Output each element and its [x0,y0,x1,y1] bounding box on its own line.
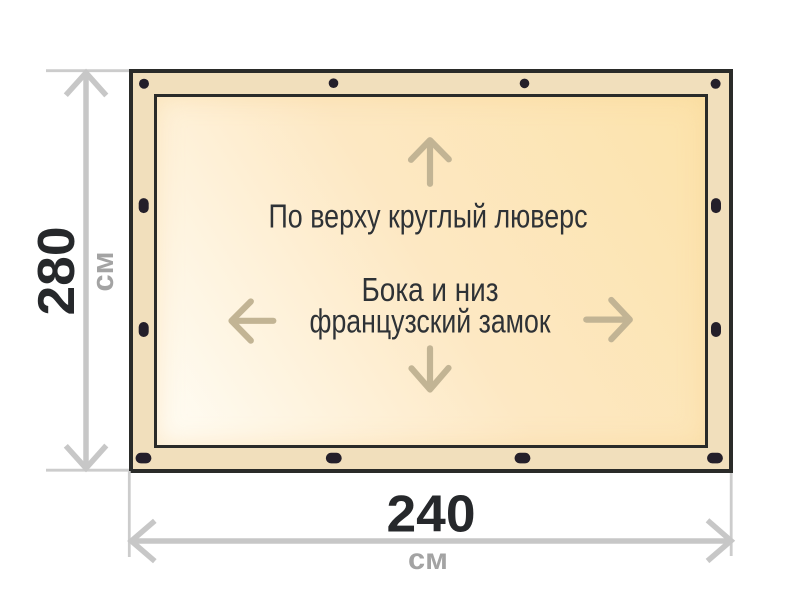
svg-text:см: см [408,543,448,576]
svg-text:см: см [85,251,120,291]
svg-text:280: 280 [27,227,85,316]
svg-text:По верху круглый люверс: По верху круглый люверс [269,198,588,235]
svg-text:французский замок: французский замок [310,304,551,341]
svg-text:240: 240 [387,485,476,543]
